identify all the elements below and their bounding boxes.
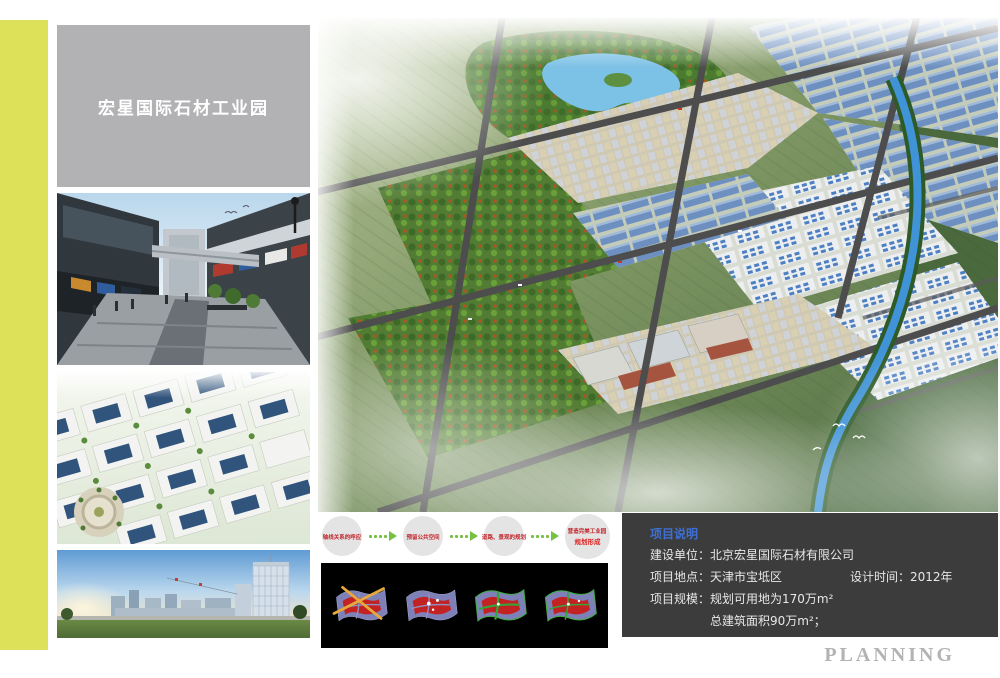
arrow-head: [551, 531, 559, 541]
presentation-board: 宏星国际石材工业园: [0, 0, 1000, 678]
page-title: 宏星国际石材工业园: [98, 94, 269, 119]
dot: [536, 535, 539, 538]
title-box: 宏星国际石材工业园: [57, 25, 310, 187]
photo-dusk-skyline: [57, 550, 310, 638]
concept-diagram-panel: [321, 563, 608, 648]
flow-step-4-sublabel: 规划形成: [575, 536, 601, 546]
info-row-builder: 建设单位：北京宏星国际石材有限公司: [650, 544, 998, 566]
info-value: 总建筑面积90万m²；: [710, 614, 826, 628]
final-plan-concept-icon: [538, 575, 600, 637]
info-row-location: 项目地点：天津市宝坻区 设计时间：2012年: [650, 566, 998, 588]
flow-arrow-icon: [531, 531, 559, 541]
dot: [460, 535, 463, 538]
dot: [541, 535, 544, 538]
flow-arrow-icon: [369, 531, 397, 541]
info-row-area: 总建筑面积90万m²；: [650, 610, 998, 632]
dot: [465, 535, 468, 538]
flow-step-3-label: 道路、景观的规划: [482, 532, 526, 540]
dot: [546, 535, 549, 538]
info-value: 规划可用地为170万m²: [710, 592, 833, 606]
info-label: 建设单位：: [650, 548, 710, 562]
flow-step-1: 轴线关系的呼应: [322, 516, 362, 556]
street-view-illustration: [57, 193, 310, 365]
dot: [455, 535, 458, 538]
info-value: 北京宏星国际石材有限公司: [710, 548, 854, 562]
masterplan-illustration: [318, 18, 998, 512]
info-value: 天津市宝坻区: [710, 570, 782, 584]
flow-step-3: 道路、景观的规划: [484, 516, 524, 556]
dot: [531, 535, 534, 538]
dot: [379, 535, 382, 538]
masterplan-rendering: [318, 18, 998, 512]
flow-arrow-icon: [450, 531, 478, 541]
road-network-concept-icon: [468, 575, 530, 637]
project-info-heading: 项目说明: [650, 524, 998, 544]
project-info-box: 项目说明 建设单位：北京宏星国际石材有限公司 项目地点：天津市宝坻区 设计时间：…: [622, 513, 998, 637]
photo-street-view: [57, 193, 310, 365]
accent-stripe: [0, 20, 48, 650]
dusk-skyline-illustration: [57, 550, 310, 638]
arrow-head: [389, 531, 397, 541]
dot: [374, 535, 377, 538]
photo-aerial-park: [57, 372, 310, 544]
info-label: 项目规模：: [650, 592, 710, 606]
dot: [450, 535, 453, 538]
flow-step-1-label: 轴线关系的呼应: [323, 532, 362, 540]
dot: [384, 535, 387, 538]
info-row-scale: 项目规模：规划可用地为170万m²: [650, 588, 998, 610]
planning-label: PLANNING: [824, 644, 955, 667]
arrow-head: [470, 531, 478, 541]
dot: [369, 535, 372, 538]
info-label: 项目地点：: [650, 570, 710, 584]
flow-step-2-label: 预留公共空间: [406, 532, 439, 540]
design-time: 设计时间：2012年: [850, 566, 953, 588]
concept-flow-diagram: 轴线关系的呼应 预留公共空间 道路、景观的规划 营造完美工业园 规划形成: [322, 512, 610, 560]
flow-step-4-label: 营造完美工业园: [568, 526, 607, 534]
flow-step-2: 预留公共空间: [403, 516, 443, 556]
axis-concept-icon: [329, 575, 391, 637]
aerial-park-illustration: [57, 372, 310, 544]
node-concept-icon: [399, 575, 461, 637]
flow-step-4: 营造完美工业园 规划形成: [565, 514, 610, 559]
